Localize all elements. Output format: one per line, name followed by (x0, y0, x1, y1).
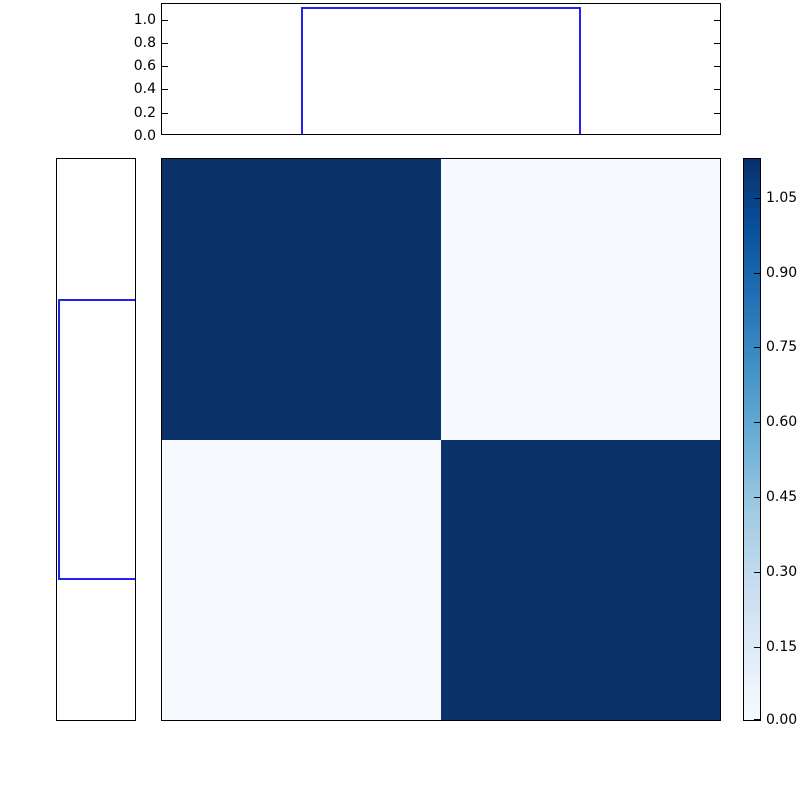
colorbar-label: 0.30 (766, 565, 800, 579)
colorbar-label: 0.15 (766, 640, 800, 654)
colorbar-tick (754, 497, 760, 498)
left-step-line (58, 299, 135, 580)
colorbar-tick (754, 422, 760, 423)
ytick-mark-right (714, 113, 720, 114)
ytick-label: 1.0 (112, 13, 156, 27)
ytick-label: 0.6 (112, 59, 156, 73)
colorbar-label: 0.45 (766, 490, 800, 504)
ytick-label: 0.0 (112, 129, 156, 143)
ytick-label: 0.8 (112, 36, 156, 50)
colorbar-tick (754, 273, 760, 274)
colorbar-label: 1.05 (766, 191, 800, 205)
heatmap-cell-0-0 (162, 159, 441, 440)
ytick-mark-right (714, 134, 720, 135)
colorbar-label: 0.90 (766, 266, 800, 280)
ytick-mark (162, 43, 168, 44)
ytick-mark (162, 89, 168, 90)
left-marginal-axes (56, 158, 136, 721)
top-marginal-axes: 1.0 0.8 0.6 0.4 0.2 0.0 (161, 3, 721, 135)
colorbar-tick (754, 719, 760, 720)
colorbar-label: 0.60 (766, 415, 800, 429)
ytick-mark-right (714, 20, 720, 21)
colorbar-tick (754, 347, 760, 348)
colorbar-label: 0.00 (766, 713, 800, 727)
ytick-label: 0.4 (112, 82, 156, 96)
ytick-mark (162, 66, 168, 67)
ytick-label: 0.2 (112, 106, 156, 120)
ytick-mark-right (714, 66, 720, 67)
colorbar-tick (754, 572, 760, 573)
ytick-mark (162, 113, 168, 114)
ytick-mark (162, 20, 168, 21)
figure-canvas: 1.0 0.8 0.6 0.4 0.2 0.0 1.05 0.90 0.75 0… (0, 0, 800, 800)
ytick-mark-right (714, 89, 720, 90)
colorbar-tick (754, 647, 760, 648)
top-step-line (301, 7, 581, 134)
ytick-mark (162, 134, 168, 135)
ytick-mark-right (714, 43, 720, 44)
colorbar-tick (754, 198, 760, 199)
heatmap-cell-1-0 (162, 440, 441, 721)
colorbar-label: 0.75 (766, 340, 800, 354)
heatmap (161, 158, 721, 721)
colorbar: 1.05 0.90 0.75 0.60 0.45 0.30 0.15 0.00 (743, 158, 761, 721)
heatmap-cell-0-1 (441, 159, 720, 440)
heatmap-cell-1-1 (441, 440, 720, 721)
